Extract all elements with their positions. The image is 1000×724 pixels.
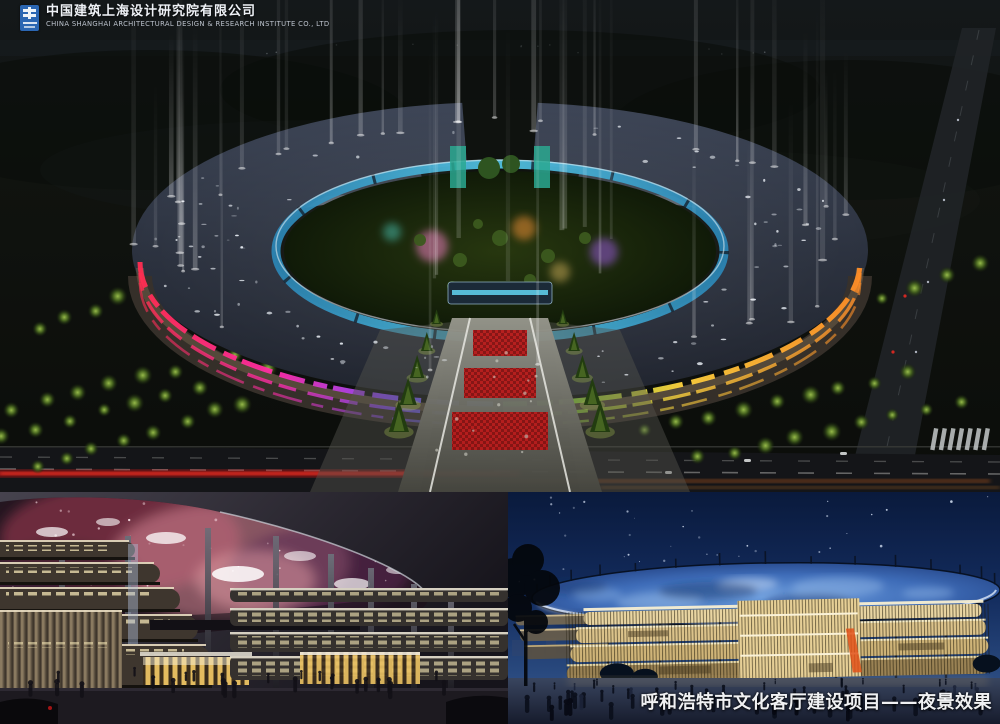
company-name-zh: 中国建筑上海设计研究院有限公司: [46, 5, 329, 18]
nebula-rendering-graphic: [0, 492, 508, 724]
company-header: 中国建筑上海设计研究院有限公司 CHINA SHANGHAI ARCHITECT…: [20, 5, 329, 31]
golden-building: [515, 595, 1000, 687]
street-rendering-blue-canopy: 呼和浩特市文化客厅建设项目——夜景效果: [508, 492, 1000, 724]
street-rendering-nebula-canopy: [0, 492, 508, 724]
project-caption: 呼和浩特市文化客厅建设项目——夜景效果: [641, 688, 993, 714]
cscec-logo-icon: [20, 5, 39, 31]
aerial-night-rendering: 中国建筑上海设计研究院有限公司 CHINA SHANGHAI ARCHITECT…: [0, 0, 1000, 492]
aerial-rendering-graphic: [0, 0, 1000, 492]
presentation-board: 中国建筑上海设计研究院有限公司 CHINA SHANGHAI ARCHITECT…: [0, 0, 1000, 724]
company-name-en: CHINA SHANGHAI ARCHITECTURAL DESIGN & RE…: [46, 21, 329, 28]
